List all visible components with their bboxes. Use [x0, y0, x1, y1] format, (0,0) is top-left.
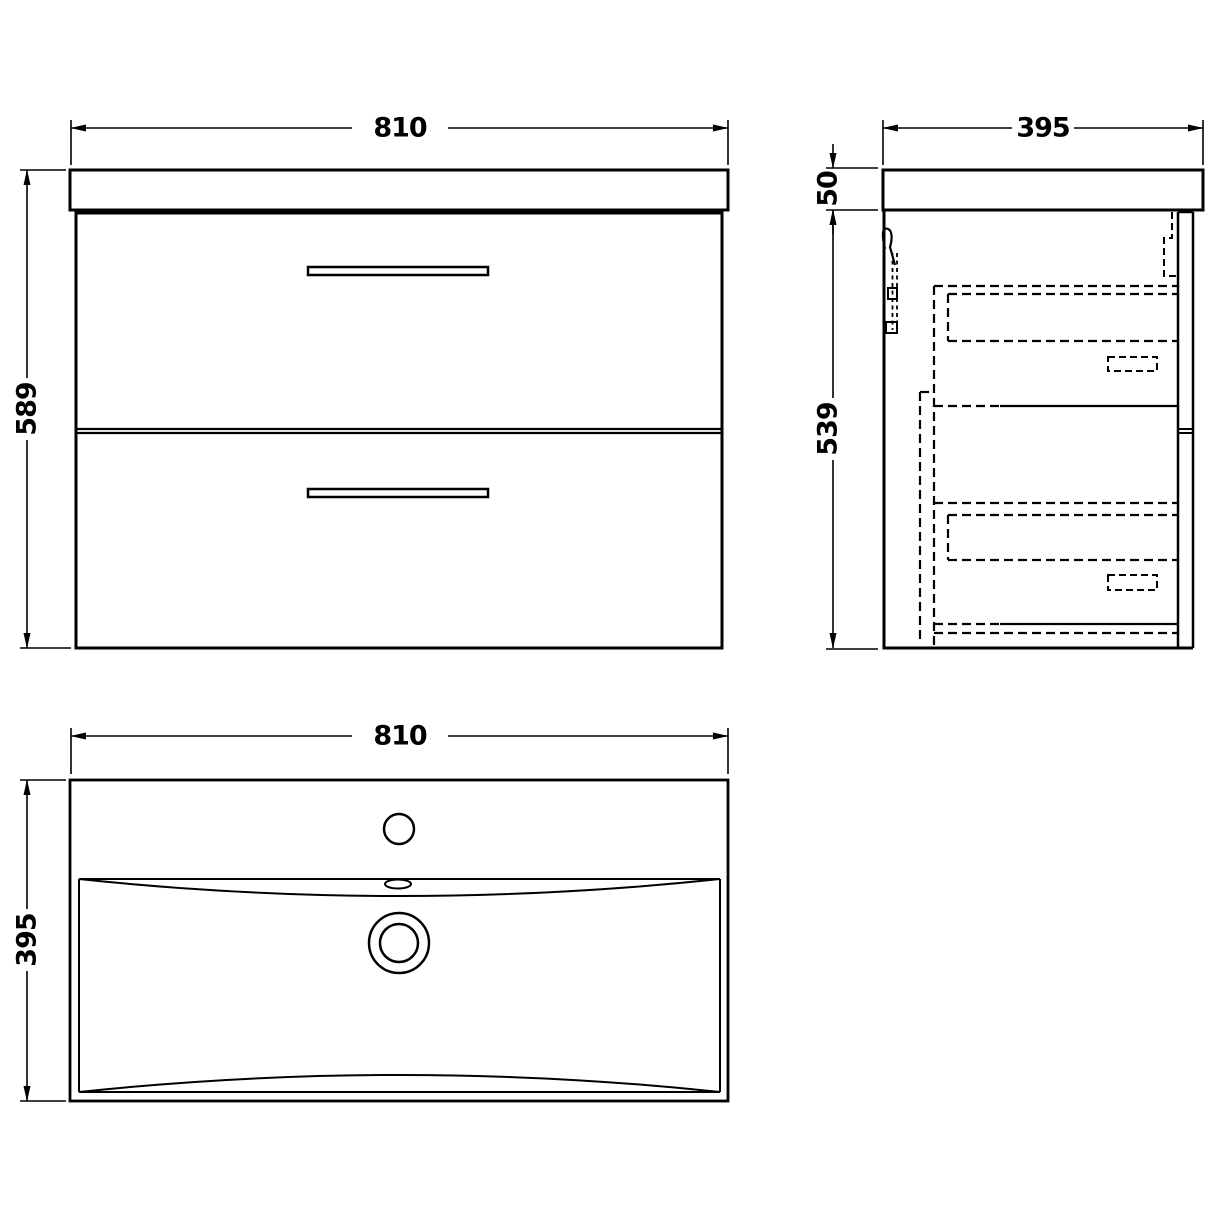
- front-drawer2-handle: [308, 489, 488, 497]
- front-width-label: 810: [373, 113, 427, 144]
- vanity-technical-drawing: 810 589: [0, 0, 1224, 1224]
- side-rear-bracket: [1164, 212, 1178, 276]
- plan-basin-outer-rim: [70, 780, 728, 1101]
- plan-tap-hole: [384, 814, 414, 844]
- side-worktop: [883, 170, 1203, 210]
- plan-overflow-slot: [385, 880, 411, 889]
- side-section-view: [883, 170, 1203, 648]
- technical-drawing-canvas: 810 589: [0, 0, 1224, 1224]
- front-height-label: 589: [12, 382, 43, 436]
- side-drawer1-runner: [1108, 357, 1157, 371]
- side-worktop-height-label: 50: [813, 171, 844, 207]
- plan-depth-label: 395: [12, 913, 43, 966]
- side-hidden-structure: [920, 286, 1178, 646]
- plan-waste-outlet: [369, 913, 429, 973]
- side-drawer2-runner: [1108, 575, 1157, 590]
- front-drawer1-handle: [308, 267, 488, 275]
- front-elevation-view: [70, 170, 728, 648]
- plan-width-label: 810: [373, 721, 427, 752]
- front-worktop: [70, 170, 728, 210]
- side-depth-label: 395: [1016, 113, 1069, 144]
- side-cabinet-height-label: 539: [813, 402, 844, 456]
- front-cabinet: [76, 213, 722, 648]
- plan-basin-bowl: [79, 879, 720, 1092]
- side-cabinet-outline: [884, 211, 1193, 648]
- basin-plan-view: [70, 780, 728, 1101]
